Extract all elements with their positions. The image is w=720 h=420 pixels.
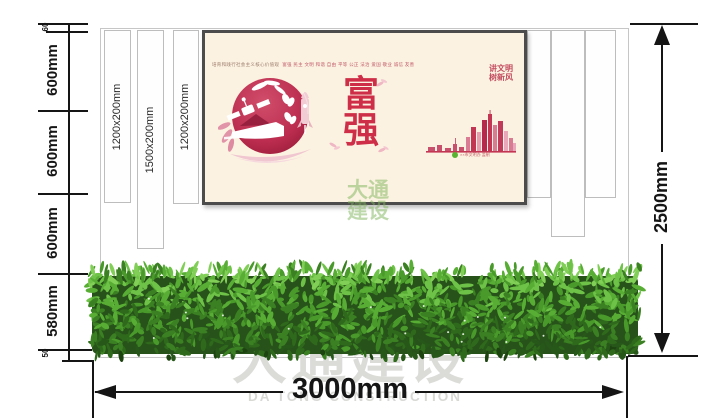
dim-tick: [628, 355, 698, 357]
arrow-left-icon: [94, 385, 116, 399]
slat-left-1: 1200x200mm: [104, 30, 131, 203]
dim-line: [95, 391, 283, 393]
core-values-text: 培育和践行社会主义核心价值观富强 民主 文明 和谐 自由 平等 公正 法治 爱国…: [212, 62, 414, 68]
credit-badge: ××市文明办 监制: [452, 152, 490, 158]
values-list: 富强 民主 文明 和谐 自由 平等 公正 法治 爱国 敬业 诚信 友善: [282, 62, 414, 67]
slat-size-label: 1500x200mm: [144, 75, 158, 205]
city-skyline-graphic: [426, 110, 516, 155]
dim-line: [661, 44, 663, 152]
hedge-image: [84, 258, 646, 362]
dim-label-bottom-small: 50: [40, 341, 50, 365]
watermark-poster-line1: 大通: [344, 180, 392, 201]
dim-label-600-2: 600mm: [44, 111, 60, 191]
dim-label-width: 3000mm: [275, 373, 425, 406]
papercut-emblem-graphic: [218, 74, 318, 170]
dim-label-600-1: 600mm: [44, 30, 60, 110]
slat-size-label: 1200x200mm: [111, 52, 125, 182]
watermark-poster: 大通 建设: [344, 180, 392, 222]
slat-size-label: 1200x200mm: [179, 52, 193, 182]
pink-sprig-icon: [329, 141, 341, 151]
slat-left-3: 1200x200mm: [173, 30, 199, 204]
values-intro: 培育和践行社会主义核心价值观: [212, 62, 279, 67]
dim-extension-line: [626, 356, 628, 418]
arrow-right-icon: [602, 385, 624, 399]
dim-chain-line: [68, 23, 70, 360]
credit-text: ××市文明办 监制: [460, 152, 490, 158]
dim-label-600-3: 600mm: [44, 193, 60, 273]
dim-line: [661, 244, 663, 334]
slat-right-2: [551, 30, 585, 237]
design-canvas: 1200x200mm 1500x200mm 1200x200mm 培育和践行社会…: [0, 0, 720, 420]
pink-sprig-icon: [377, 145, 389, 155]
arrow-down-icon: [654, 333, 670, 353]
green-seal-icon: [452, 152, 458, 158]
watermark-poster-line2: 建设: [344, 201, 392, 222]
arrow-up-icon: [654, 25, 670, 45]
slat-right-1: [527, 30, 551, 198]
slogan-line-2: 树新风: [482, 73, 520, 82]
poster-content: 培育和践行社会主义核心价值观富强 民主 文明 和谐 自由 平等 公正 法治 爱国…: [205, 33, 524, 202]
slogan-text: 讲文明 树新风: [482, 64, 520, 82]
dim-label-height: 2500mm: [651, 151, 671, 243]
main-word-bottom: 强: [338, 112, 384, 148]
dim-connector: [62, 360, 93, 362]
slogan-line-1: 讲文明: [482, 64, 520, 73]
dim-label-580: 580mm: [44, 271, 60, 351]
pink-sprig-icon: [376, 78, 388, 88]
slat-right-3: [585, 30, 616, 198]
dim-line: [415, 391, 602, 393]
slat-left-2: 1500x200mm: [137, 30, 164, 249]
